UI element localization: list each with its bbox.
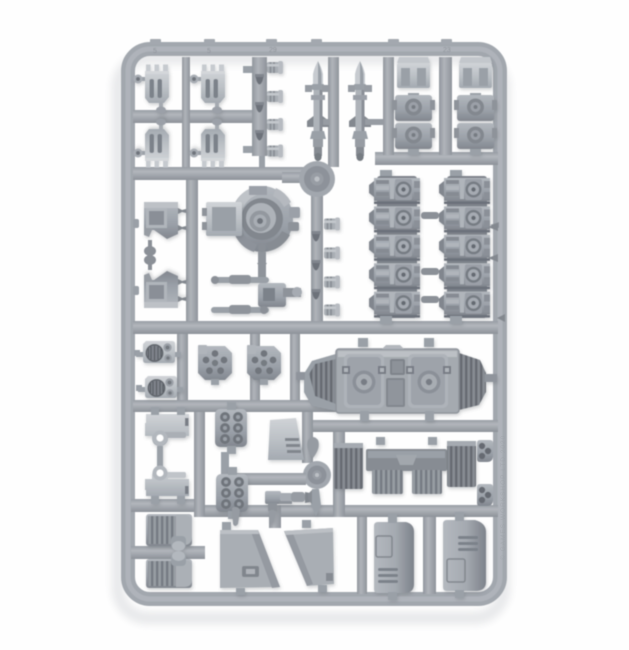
svg-text:23: 23 (443, 47, 451, 54)
svg-text:29: 29 (269, 47, 277, 54)
svg-text:5: 5 (207, 48, 211, 55)
svg-text:© GAMES WORKSHOP LTD 2020: © GAMES WORKSHOP LTD 2020 (499, 435, 507, 560)
svg-text:5: 5 (153, 48, 157, 55)
